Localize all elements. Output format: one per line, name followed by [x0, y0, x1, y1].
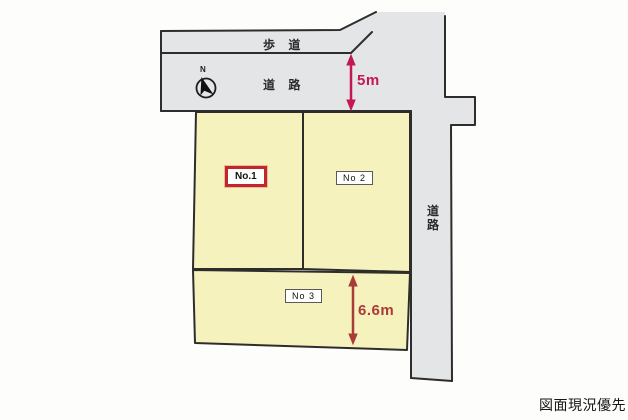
dimension-label-6-6m: 6.6m [358, 302, 394, 319]
plot-no1-tag: No.1 [225, 166, 267, 187]
dimension-label-5m: 5m [357, 72, 380, 89]
drawing-priority-note: 図面現況優先 [539, 395, 626, 415]
plan-drawing [0, 0, 628, 420]
plot-no1-shape [193, 112, 303, 269]
sidewalk-top-line [161, 12, 376, 31]
north-label: N [200, 65, 206, 74]
plot-no2-shape [303, 112, 410, 272]
side-road-label: 道路 [427, 204, 440, 232]
site-plan-canvas: 歩 道 道 路 道路 N 5m 6.6m No.1 No 2 No 3 図面現況… [0, 0, 628, 420]
plot-no2-tag: No 2 [336, 171, 373, 185]
front-road-label: 道 路 [263, 76, 305, 93]
plot-no3-tag: No 3 [285, 289, 322, 303]
sidewalk-label: 歩 道 [263, 36, 305, 53]
